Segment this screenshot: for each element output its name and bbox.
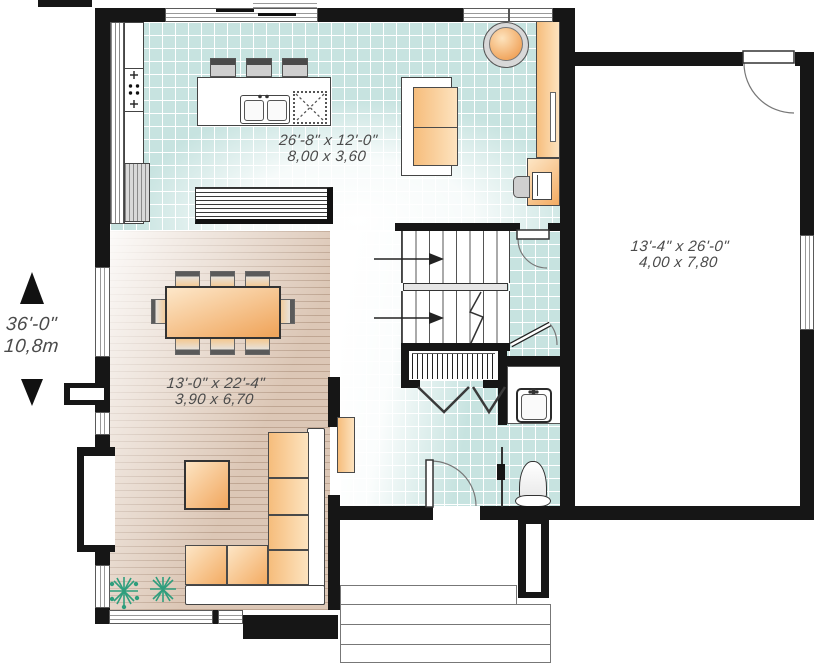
- sink-basin-right: [267, 100, 287, 121]
- house-garage-wall: [560, 8, 575, 506]
- sectional-corner-cushion: [268, 550, 309, 585]
- stairs-upper-flight: [401, 231, 510, 283]
- crop-artifact-bar: [38, 0, 92, 7]
- desk-chair: [513, 176, 530, 198]
- family-window: [463, 8, 553, 22]
- bar-stool: [282, 58, 308, 77]
- living-window-bottom-1: [109, 610, 213, 624]
- round-chair-cushion: [489, 27, 523, 61]
- bathroom-niche-wall: [507, 356, 567, 366]
- living-dimension-label: 13'-0" x 22'-4" 3,90 x 6,70: [134, 376, 297, 408]
- left-wall-seg: [95, 550, 110, 565]
- left-wall-upper: [95, 8, 110, 267]
- fireplace-firebox: [84, 456, 115, 545]
- stair-top-wall-stub: [548, 223, 560, 231]
- dining-window: [95, 267, 110, 357]
- desk-counter-slot: [550, 92, 556, 142]
- dishwasher-icon: [293, 91, 327, 124]
- kitchen-buffet: [195, 187, 333, 224]
- desk-monitor-icon: [532, 172, 552, 200]
- dining-table: [165, 286, 281, 339]
- garage-top-wall-left: [575, 52, 743, 66]
- kitchen-window: [165, 8, 318, 22]
- left-wall-seg: [95, 357, 110, 385]
- dining-chair: [175, 338, 200, 355]
- kitchen-dimension-label: 26'-8" x 12'-0" 8,00 x 3,60: [239, 133, 417, 165]
- sofa-cushion-divider: [414, 127, 457, 128]
- bottom-wall-corner: [95, 610, 109, 624]
- stair-bottom-wall: [401, 343, 510, 351]
- living-hall-wall-lower: [328, 495, 340, 610]
- side-dim-metric: 10,8m: [3, 336, 75, 358]
- monitor-inner-line: [537, 175, 538, 196]
- stairs-lower-flight: [401, 291, 510, 343]
- sectional-cushion: [185, 545, 227, 585]
- living-dims-imperial: 13'-0" x 22'-4": [135, 376, 296, 392]
- refrigerator-icon: [124, 163, 150, 222]
- kitchen-wall-counter: [110, 22, 124, 224]
- living-window-left-1: [95, 412, 110, 435]
- garage-dims-metric: 4,00 x 7,80: [589, 255, 768, 271]
- porch-step-4: [340, 644, 551, 663]
- garage-door: [743, 51, 794, 113]
- garage-window: [800, 235, 814, 330]
- wall-niche-interior: [70, 388, 104, 400]
- garage-right-wall-upper: [800, 52, 814, 235]
- living-dims-metric: 3,90 x 6,70: [134, 392, 295, 408]
- side-dim-imperial: 36'-0": [5, 314, 77, 336]
- sectional-cushion: [268, 515, 309, 550]
- sectional-back-bottom: [185, 585, 325, 605]
- bathroom-sink-basin: [521, 394, 547, 420]
- dining-chair: [245, 338, 270, 355]
- sectional-cushion: [268, 478, 309, 515]
- bar-stool: [210, 58, 236, 77]
- side-dimension-label: 36'-0" 10,8m: [3, 314, 77, 358]
- dimension-down-arrow-icon: [21, 379, 43, 406]
- bathroom-wall-tick: [497, 464, 505, 480]
- sectional-cushion: [268, 432, 309, 478]
- hall-bottom-wall-left: [330, 506, 433, 520]
- sectional-cushion: [227, 545, 268, 585]
- sectional-back-right: [307, 428, 325, 605]
- porch-step-3: [340, 624, 551, 645]
- garage-dimension-label: 13'-4" x 26'-0" 4,00 x 7,80: [589, 239, 770, 271]
- floor-plan: 26'-8" x 12'-0" 8,00 x 3,60 13'-0" x 22'…: [0, 0, 819, 664]
- garage-right-wall-lower: [800, 330, 814, 520]
- wall-desk-counter: [536, 20, 560, 158]
- closet-hangers-icon: [412, 353, 495, 379]
- stair-top-wall: [395, 223, 520, 231]
- porch-step-1: [340, 585, 517, 605]
- coffee-table: [184, 460, 230, 510]
- living-window-left-2: [95, 565, 110, 608]
- garage-bottom-wall: [575, 506, 814, 520]
- window-mullion: [508, 9, 510, 21]
- hall-cabinet: [337, 417, 355, 473]
- family-sofa-cushions: [413, 87, 458, 166]
- sink-basin-left: [244, 100, 264, 121]
- closet-right-wall: [498, 343, 507, 425]
- porch-step-2: [340, 604, 551, 625]
- stairs-handrail: [403, 283, 508, 291]
- left-wall-seg: [95, 403, 110, 412]
- dining-chair: [210, 338, 235, 355]
- porch-wall-core: [526, 524, 541, 592]
- kitchen-dims-metric: 8,00 x 3,60: [239, 149, 415, 165]
- top-wall-mid: [318, 8, 463, 22]
- closet-bottom-wall-left: [401, 380, 420, 388]
- cooktop-icon: [124, 68, 144, 112]
- bottom-wall-block: [243, 615, 338, 639]
- bar-stool: [246, 58, 272, 77]
- dimension-up-arrow-icon: [20, 272, 44, 304]
- garage-dims-imperial: 13'-4" x 26'-0": [590, 239, 769, 255]
- kitchen-dims-imperial: 26'-8" x 12'-0": [240, 133, 416, 149]
- living-window-bottom-2: [218, 610, 243, 624]
